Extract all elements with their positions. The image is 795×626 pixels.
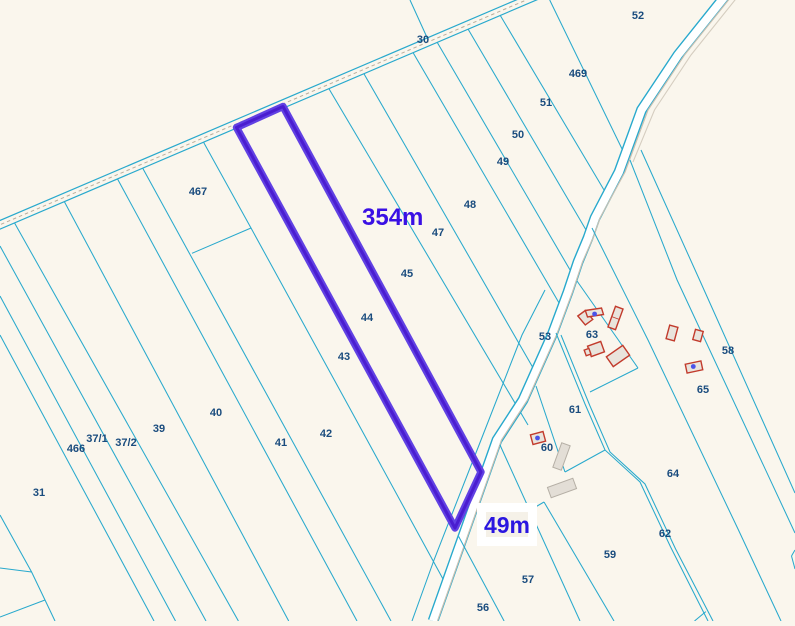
svg-text:31: 31 [33,487,45,499]
svg-text:58: 58 [722,345,734,357]
svg-text:48: 48 [464,199,476,211]
svg-text:51: 51 [540,97,552,109]
svg-text:466: 466 [67,443,85,455]
svg-text:53: 53 [539,331,551,343]
svg-text:37/1: 37/1 [86,433,107,445]
svg-text:44: 44 [361,312,374,324]
svg-text:65: 65 [697,384,709,396]
svg-text:43: 43 [338,351,350,363]
svg-text:60: 60 [541,442,553,454]
svg-text:49m: 49m [484,512,530,538]
svg-text:49: 49 [497,156,509,168]
svg-text:62: 62 [659,528,671,540]
svg-text:45: 45 [401,268,413,280]
svg-text:63: 63 [586,329,598,341]
svg-text:39: 39 [153,423,165,435]
svg-text:37/2: 37/2 [115,437,136,449]
svg-text:64: 64 [667,468,680,480]
svg-text:59: 59 [604,549,616,561]
svg-text:40: 40 [210,407,222,419]
svg-text:61: 61 [569,404,581,416]
svg-text:467: 467 [189,186,207,198]
svg-text:42: 42 [320,428,332,440]
svg-text:56: 56 [477,602,489,614]
svg-text:41: 41 [275,437,287,449]
svg-text:469: 469 [569,68,587,80]
svg-text:57: 57 [522,574,534,586]
svg-text:47: 47 [432,227,444,239]
svg-text:30: 30 [417,34,429,46]
svg-text:50: 50 [512,129,524,141]
svg-text:52: 52 [632,10,644,22]
svg-text:354m: 354m [362,204,423,231]
